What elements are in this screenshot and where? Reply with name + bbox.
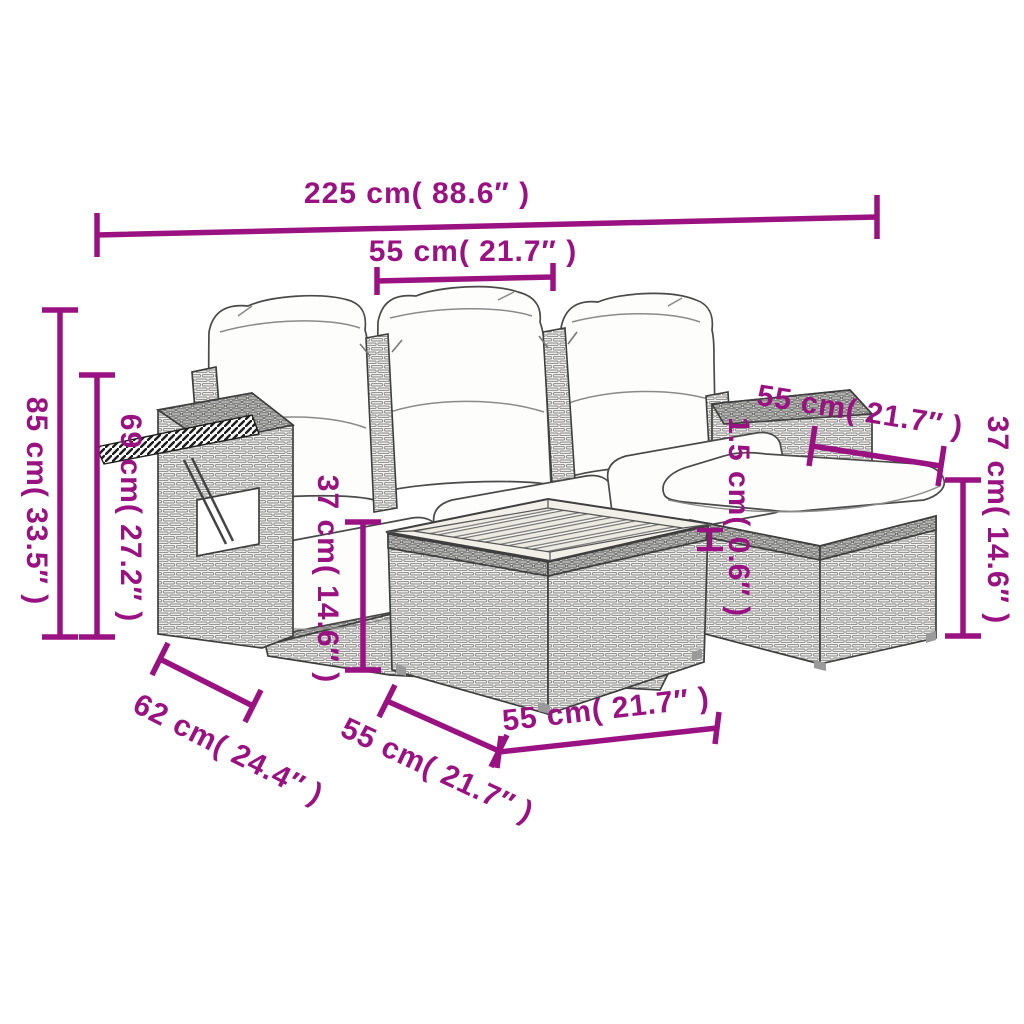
product-dimension-diagram: 225 cm( 88.6″ ) 55 cm( 21.7″ ) 85 cm( 33… (0, 0, 1024, 1024)
dim-label-cushion-thickness: 1.5 cm( 0.6″ ) (721, 417, 755, 617)
back-cushion-middle (378, 287, 551, 492)
dim-label-back-height: 69 cm( 27.2″ ) (113, 414, 147, 622)
dim-label-total-width: 225 cm( 88.6″ ) (304, 177, 530, 211)
dim-label-seat-height: 37 cm( 14.6″ ) (310, 475, 344, 683)
dim-line-back-height (79, 375, 115, 637)
dim-label-seat-width: 55 cm( 21.7″ ) (369, 235, 577, 269)
dim-label-stool-height: 37 cm( 14.6″ ) (980, 416, 1014, 624)
furniture-line-art (0, 0, 1024, 1024)
dim-line-stool-height (945, 480, 981, 636)
dim-label-total-height: 85 cm( 33.5″ ) (19, 397, 53, 605)
armrest-window (197, 488, 259, 556)
